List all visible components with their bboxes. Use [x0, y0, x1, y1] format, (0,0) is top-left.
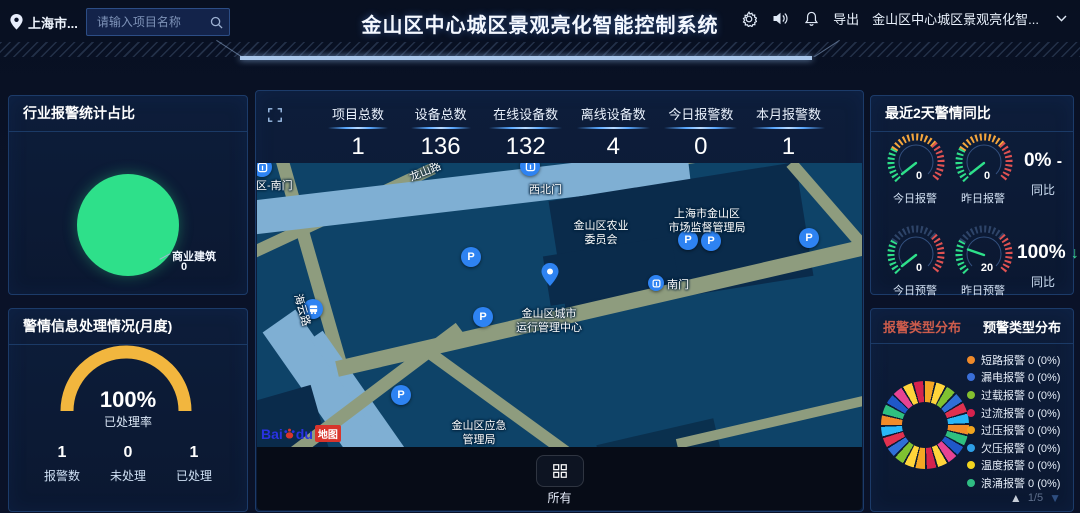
pie-slice-label: 商业建筑: [172, 248, 216, 264]
kpi-month-alarms: 本月报警数1: [756, 104, 821, 161]
speaker-icon[interactable]: [771, 10, 789, 28]
type-distribution-panel: 报警类型分布 预警类型分布 短路报警 0 (0%) 漏电报警 0 (0%) 过载…: [870, 308, 1074, 512]
svg-text:0: 0: [916, 262, 922, 274]
kpi-offline: 离线设备数4: [581, 104, 646, 161]
map-label: 金山区农业 委员会: [561, 219, 641, 248]
legend-item: 漏电报警 0 (0%): [967, 369, 1067, 387]
panel-title: 行业报警统计占比: [9, 96, 247, 132]
stat-alarm-count: 1 报警数: [44, 444, 80, 484]
gauge-yesterday-warning: 20 昨日预警: [949, 224, 1017, 298]
map-footer-strip: 所有: [257, 447, 862, 510]
fullscreen-icon[interactable]: [267, 107, 283, 123]
legend-item: 欠压报警 0 (0%): [967, 439, 1067, 457]
pie-slice-value: 0: [181, 261, 187, 273]
gate-marker-icon[interactable]: [648, 275, 664, 291]
legend-item: 过载报警 0 (0%): [967, 386, 1067, 404]
industry-alarm-panel: 行业报警统计占比 商业建筑 0: [8, 95, 248, 295]
type-legend: 短路报警 0 (0%) 漏电报警 0 (0%) 过载报警 0 (0%) 过流报警…: [967, 351, 1067, 492]
baidu-logo: Bai du 地图: [261, 425, 341, 442]
tab-warning-types[interactable]: 预警类型分布: [983, 317, 1061, 336]
warning-yoy: 100% ↓ 同比: [1017, 224, 1071, 290]
chevron-down-icon[interactable]: [1052, 10, 1070, 28]
handling-rate-value: 100%: [9, 387, 247, 413]
overview-map-panel: 项目总数1 设备总数136 在线设备数132 离线设备数4 今日报警数0 本月报…: [255, 90, 864, 512]
parking-marker-icon[interactable]: P: [799, 228, 819, 248]
map-label: 上海市金山区 市场监督管理局: [655, 207, 759, 236]
svg-text:20: 20: [981, 262, 993, 274]
gear-icon[interactable]: [740, 10, 758, 28]
stat-handled: 1 已处理: [176, 444, 212, 484]
layers-all-label: 所有: [257, 489, 862, 506]
gauge-today-alarm: 0 今日报警: [881, 132, 949, 206]
kpi-online: 在线设备数132: [493, 104, 558, 161]
two-day-trend-panel: 最近2天警情同比 0 今日报警 0 昨日报警: [870, 95, 1074, 295]
parking-marker-icon[interactable]: P: [391, 385, 411, 405]
header-accent-bar: [240, 56, 812, 60]
legend-item: 过流报警 0 (0%): [967, 404, 1067, 422]
project-selector[interactable]: 金山区中心城区景观亮化智...: [872, 9, 1039, 28]
bell-icon[interactable]: [802, 10, 820, 28]
map-canvas[interactable]: P P P P P P 西区-南门 龙山路 西北门 金山区农业 委员会 上海市金…: [257, 163, 862, 447]
baidu-paw-icon: [283, 427, 296, 440]
panel-title: 最近2天警情同比: [871, 96, 1073, 132]
page-up-icon[interactable]: ▲: [1010, 491, 1022, 505]
grid-icon: [552, 463, 568, 479]
legend-item: 过压报警 0 (0%): [967, 421, 1067, 439]
parking-marker-icon[interactable]: P: [473, 307, 493, 327]
handling-rate-label: 已处理率: [9, 413, 247, 430]
map-label: 金山区应急 管理局: [439, 419, 519, 447]
stat-unhandled: 0 未处理: [110, 444, 146, 484]
alarm-yoy: 0% - 同比: [1017, 132, 1071, 198]
gauge-today-warning: 0 今日预警: [881, 224, 949, 298]
kpi-devices: 设备总数136: [411, 104, 471, 161]
down-arrow-icon: ↓: [1071, 245, 1079, 262]
donut-hole: [902, 402, 948, 448]
map-label: 西区-南门: [257, 179, 293, 193]
kpi-projects: 项目总数1: [328, 104, 388, 161]
location-pin-marker[interactable]: [541, 263, 559, 287]
monthly-handling-panel: 警情信息处理情况(月度) 100% 已处理率 1 报警数 0 未处理 1 已处理: [8, 308, 248, 512]
svg-text:0: 0: [916, 170, 922, 182]
gauge-yesterday-alarm: 0 昨日报警: [949, 132, 1017, 206]
parking-marker-icon[interactable]: P: [461, 247, 481, 267]
map-label: 西北门: [529, 183, 562, 197]
svg-text:0: 0: [984, 170, 990, 182]
legend-item: 温度报警 0 (0%): [967, 457, 1067, 475]
layers-all-button[interactable]: [536, 455, 584, 487]
kpi-stats-row: 项目总数1 设备总数136 在线设备数132 离线设备数4 今日报警数0 本月报…: [328, 104, 821, 161]
map-label: 南门: [667, 278, 689, 292]
export-button[interactable]: 导出: [833, 9, 859, 28]
tab-alarm-types[interactable]: 报警类型分布: [883, 317, 961, 336]
no-change-icon: -: [1057, 153, 1062, 170]
kpi-today-alarms: 今日报警数0: [668, 104, 733, 161]
legend-item: 浪涌报警 0 (0%): [967, 474, 1067, 492]
page-indicator: 1/5: [1028, 492, 1043, 504]
top-header: 上海市... 金山区中心城区景观亮化智能控制系统 导出 金山区中心城区景观亮化智…: [0, 0, 1080, 42]
page-down-icon[interactable]: ▼: [1049, 491, 1061, 505]
legend-item: 短路报警 0 (0%): [967, 351, 1067, 369]
industry-pie-chart: [77, 174, 179, 276]
map-label: 金山区城市 运行管理中心: [509, 307, 589, 336]
gate-marker-icon[interactable]: [257, 163, 272, 177]
header-hatch-decoration: [0, 42, 1080, 57]
